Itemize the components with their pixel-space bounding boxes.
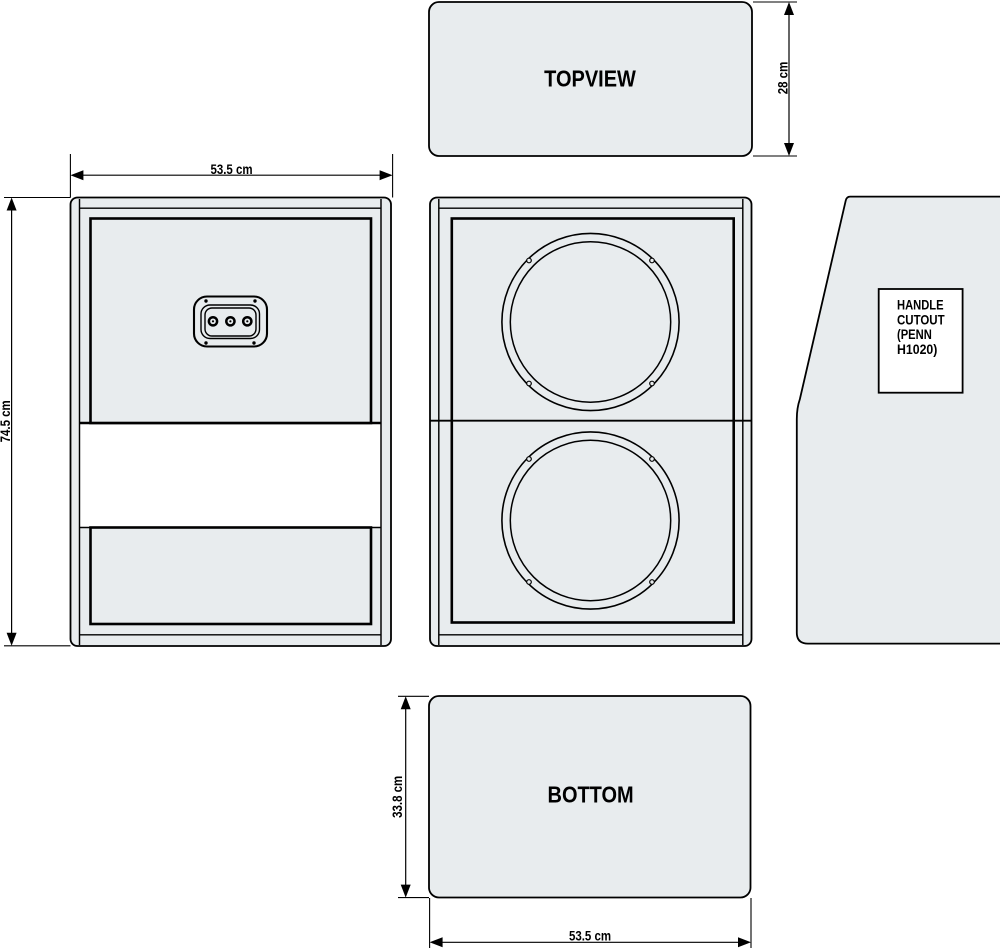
svg-text:(PENN: (PENN (897, 327, 932, 342)
svg-text:BOTTOM: BOTTOM (548, 781, 634, 808)
svg-text:28 cm: 28 cm (774, 62, 790, 95)
svg-text:53.5 cm: 53.5 cm (210, 161, 252, 177)
svg-text:53.5 cm: 53.5 cm (569, 927, 611, 943)
svg-text:CUTOUT: CUTOUT (897, 311, 945, 327)
svg-text:33.8 cm: 33.8 cm (389, 776, 405, 818)
svg-text:74.5 cm: 74.5 cm (0, 400, 13, 442)
svg-text:H1020): H1020) (897, 341, 937, 357)
svg-text:TOPVIEW: TOPVIEW (544, 65, 636, 92)
